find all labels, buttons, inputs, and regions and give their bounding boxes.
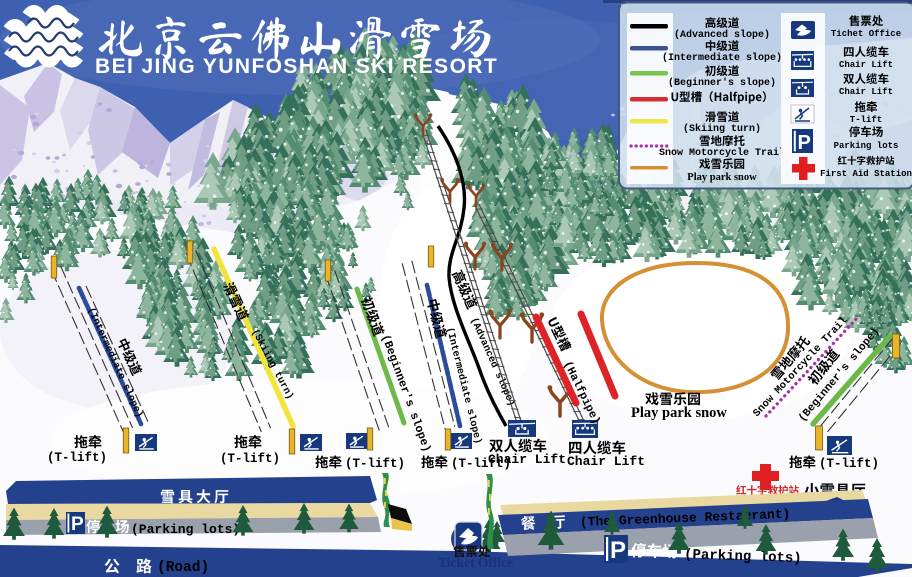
svg-text:(T-lift): (T-lift) xyxy=(819,457,879,471)
svg-text:P: P xyxy=(71,514,84,535)
svg-text:Chair Lift: Chair Lift xyxy=(839,87,893,97)
svg-text:(T-lift): (T-lift) xyxy=(345,457,405,471)
svg-text:(Beginner's slope): (Beginner's slope) xyxy=(668,77,776,89)
svg-text:(Intermediate slope): (Intermediate slope) xyxy=(662,52,782,64)
svg-text:(Parking lots): (Parking lots) xyxy=(131,522,240,537)
svg-text:P: P xyxy=(610,537,626,564)
svg-text:T-lift: T-lift xyxy=(850,115,882,125)
svg-text:Chair Lift: Chair Lift xyxy=(839,60,893,70)
svg-text:(T-lift): (T-lift) xyxy=(220,452,280,466)
svg-text:Parking lots: Parking lots xyxy=(834,141,899,151)
svg-text:Play park snow: Play park snow xyxy=(687,172,757,183)
svg-text:First Aid Station: First Aid Station xyxy=(820,169,912,179)
svg-text:Chair Lift: Chair Lift xyxy=(488,452,566,467)
svg-text:(Road): (Road) xyxy=(157,560,209,576)
svg-text:(Skiing turn): (Skiing turn) xyxy=(683,123,761,135)
svg-text:Tichet Office: Tichet Office xyxy=(831,29,901,39)
svg-text:BEI JING YUNFOSHAN SKI RESORT: BEI JING YUNFOSHAN SKI RESORT xyxy=(95,55,498,78)
svg-text:Chair Lift: Chair Lift xyxy=(567,454,645,469)
svg-text:P: P xyxy=(798,132,811,154)
svg-text:Ticket Office: Ticket Office xyxy=(438,555,513,570)
svg-text:(Advanced slope): (Advanced slope) xyxy=(674,29,770,41)
svg-text:(T-lift): (T-lift) xyxy=(47,451,107,465)
svg-text:Play park snow: Play park snow xyxy=(631,405,727,421)
svg-text:Snow Motorcycle Trail: Snow Motorcycle Trail xyxy=(659,147,785,159)
